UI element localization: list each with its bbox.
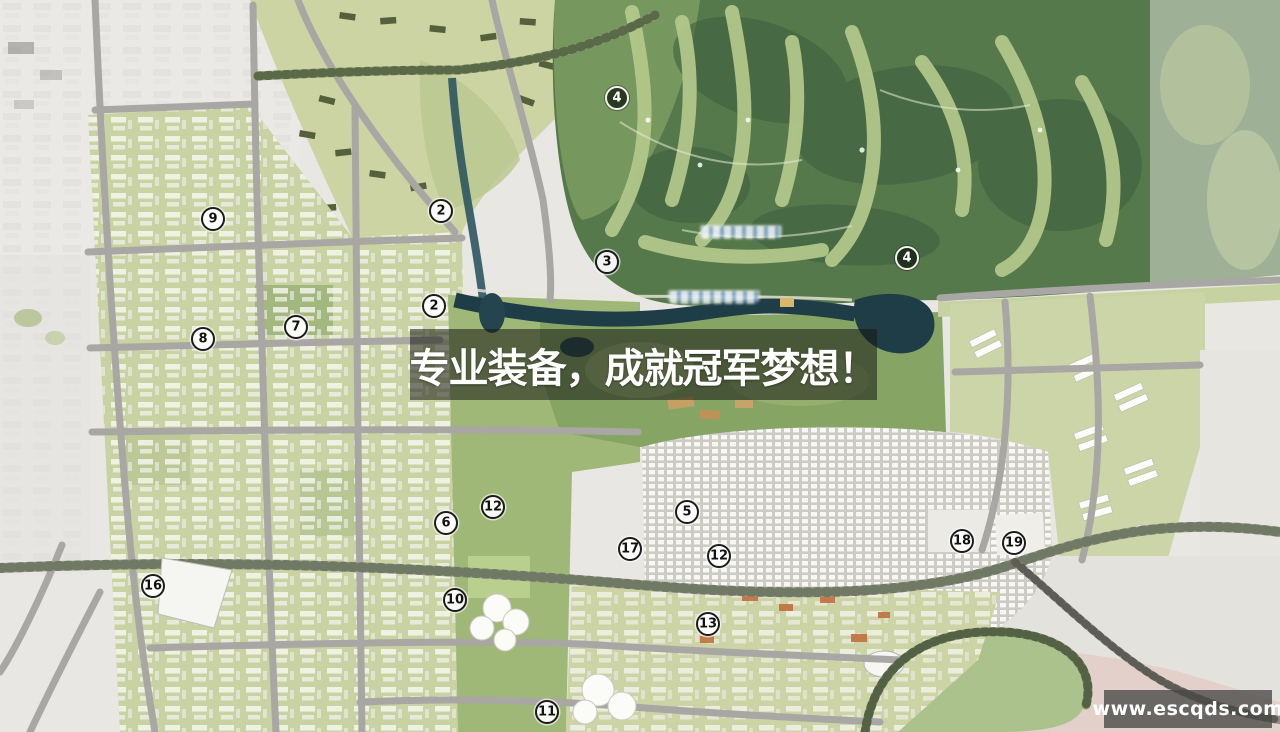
marker-label: 17 [621,542,639,555]
map-marker-4b[interactable]: 4 [895,246,919,270]
marker-label: 9 [208,212,217,225]
marker-label: 2 [436,204,445,217]
map-marker-17[interactable]: 17 [618,537,642,561]
map-marker-12a[interactable]: 12 [481,495,505,519]
marker-label: 7 [291,320,300,333]
illegible-map-label [702,226,780,239]
map-marker-9[interactable]: 9 [201,207,225,231]
map-marker-6[interactable]: 6 [434,511,458,535]
map-marker-13[interactable]: 13 [696,612,720,636]
map-marker-10[interactable]: 10 [443,588,467,612]
marker-label: 19 [1005,536,1023,549]
marker-label: 6 [441,516,450,529]
marker-label: 18 [953,534,971,547]
map-marker-16[interactable]: 16 [141,574,165,598]
watermark-text: www.escqds.com [1093,698,1280,720]
map-marker-7[interactable]: 7 [284,315,308,339]
marker-label: 16 [144,579,162,592]
marker-label: 4 [902,251,911,264]
map-marker-3[interactable]: 3 [595,250,619,274]
map-marker-8[interactable]: 8 [191,327,215,351]
site-watermark: www.escqds.com [1104,690,1272,728]
map-marker-18[interactable]: 18 [950,529,974,553]
map-marker-11[interactable]: 11 [535,700,559,724]
marker-label: 5 [682,505,691,518]
map-marker-2b[interactable]: 2 [422,294,446,318]
map-marker-19[interactable]: 19 [1002,531,1026,555]
slogan-text: 专业装备，成就冠军梦想！ [410,336,878,394]
marker-label: 12 [484,500,502,513]
marker-label: 11 [538,705,556,718]
marker-label: 3 [602,255,611,268]
slogan-banner: 专业装备，成就冠军梦想！ [410,329,877,400]
map-marker-5[interactable]: 5 [675,500,699,524]
marker-label: 10 [446,593,464,606]
marker-label: 8 [198,332,207,345]
marker-label: 2 [429,299,438,312]
illegible-map-label [670,291,758,304]
marker-label: 13 [699,617,717,630]
map-marker-4a[interactable]: 4 [605,86,629,110]
map-marker-2a[interactable]: 2 [429,199,453,223]
map-marker-12b[interactable]: 12 [707,544,731,568]
marker-label: 4 [612,91,621,104]
marker-label: 12 [710,549,728,562]
planning-map-screenshot: 4 2 9 3 4 2 7 8 12 5 6 17 12 18 19 16 10… [0,0,1280,732]
